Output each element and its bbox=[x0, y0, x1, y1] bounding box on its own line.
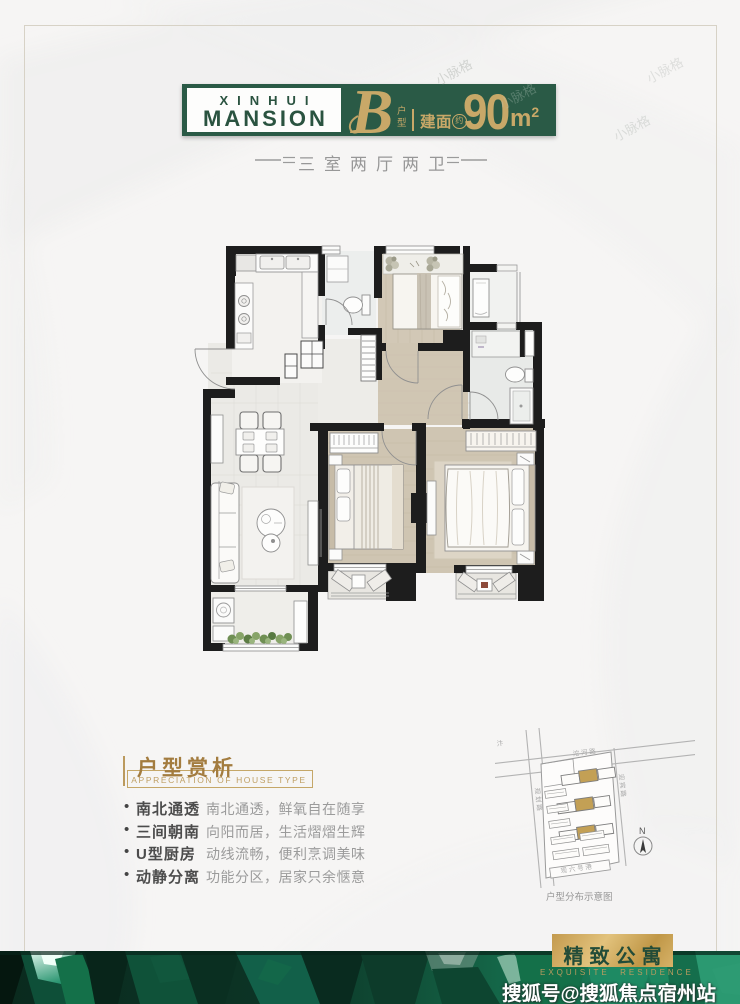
svg-text:N: N bbox=[639, 826, 646, 836]
svg-text:汴: 汴 bbox=[496, 738, 504, 748]
